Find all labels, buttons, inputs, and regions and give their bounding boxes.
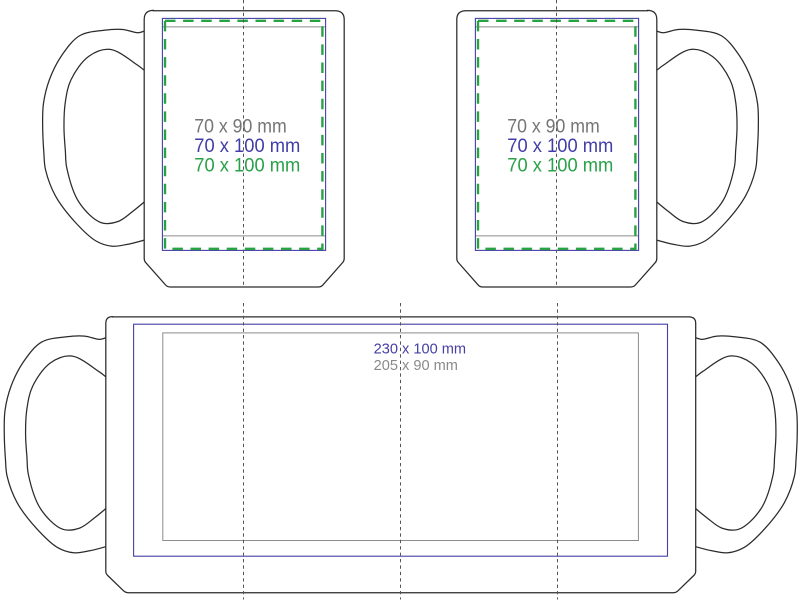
svg-text:230 x 100 mm: 230 x 100 mm (374, 342, 466, 358)
svg-text:70 x 100 mm: 70 x 100 mm (507, 154, 613, 176)
svg-text:70 x 100 mm: 70 x 100 mm (194, 154, 300, 176)
svg-text:205 x 90 mm: 205 x 90 mm (374, 358, 458, 374)
